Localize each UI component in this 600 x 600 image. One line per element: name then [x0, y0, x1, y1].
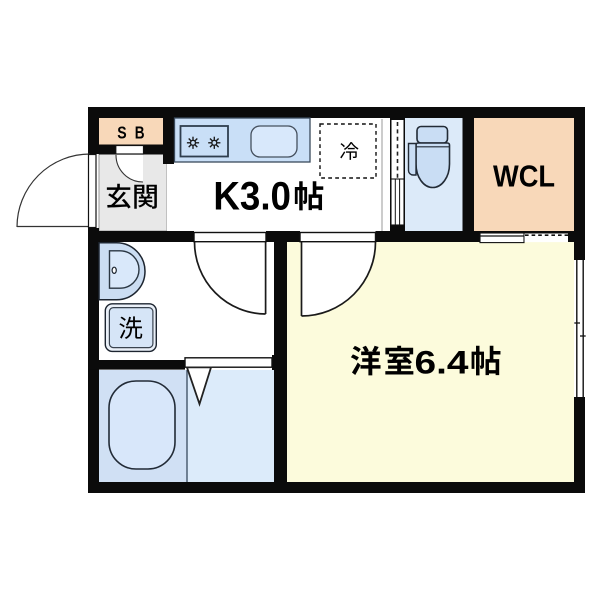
svg-text:B: B — [135, 122, 145, 142]
svg-text:K3.0: K3.0 — [213, 174, 291, 218]
svg-text:WCL: WCL — [493, 160, 555, 194]
svg-text:S: S — [117, 122, 126, 142]
svg-text:6.4: 6.4 — [415, 344, 469, 380]
